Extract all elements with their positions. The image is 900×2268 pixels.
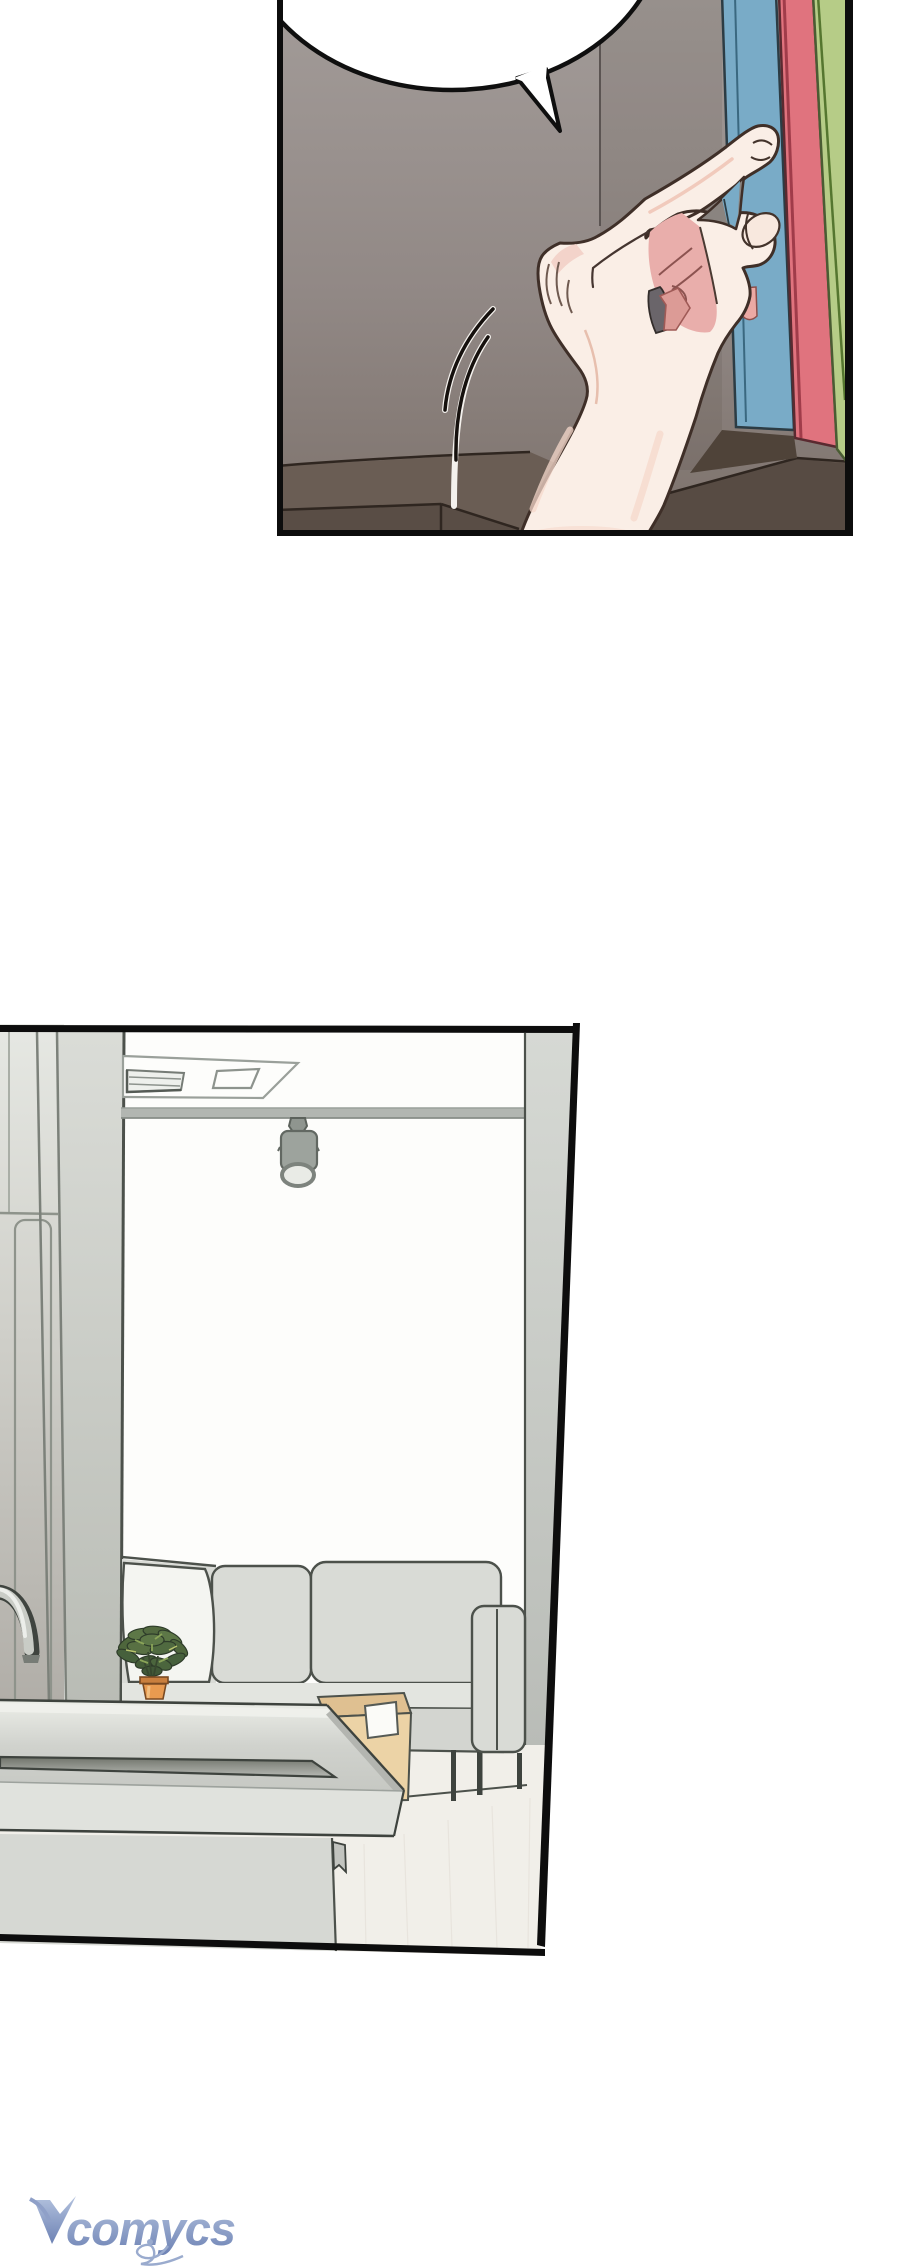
svg-text:comycs: comycs	[66, 2202, 235, 2255]
